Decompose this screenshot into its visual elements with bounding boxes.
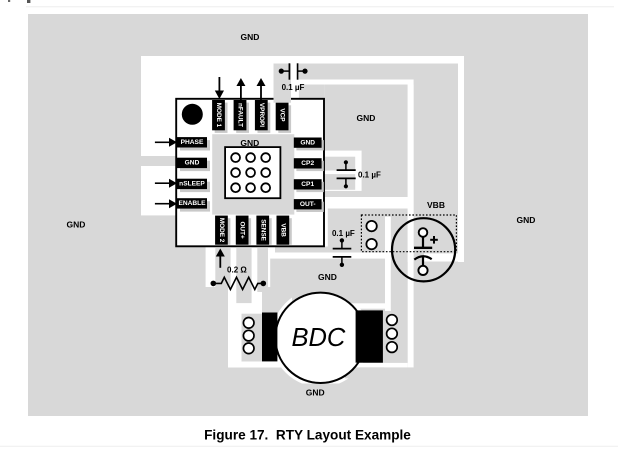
svg-text:PHASE: PHASE [181,139,204,146]
svg-text:GND: GND [300,140,315,147]
svg-text:0.1 µF: 0.1 µF [358,171,381,180]
svg-text:VBB: VBB [279,223,286,237]
svg-text:GND: GND [517,215,536,225]
svg-text:CP1: CP1 [301,181,314,188]
svg-text:GND: GND [241,32,260,42]
svg-text:GND: GND [306,387,325,397]
svg-text:MODE 1: MODE 1 [215,103,222,128]
svg-text:0.2 Ω: 0.2 Ω [227,265,247,274]
svg-text:GND: GND [67,220,86,230]
svg-text:BDC: BDC [291,324,345,352]
svg-text:0.1 µF: 0.1 µF [282,83,305,92]
svg-text:OUT+: OUT+ [239,221,246,238]
svg-text:VBB: VBB [427,200,445,210]
svg-text:VCP: VCP [279,108,286,122]
svg-text:OUT-: OUT- [300,201,316,208]
svg-text:GND: GND [357,113,376,123]
svg-text:Figure 17. RTY Layout Example: Figure 17. RTY Layout Example [204,428,411,443]
svg-text:nFAULT: nFAULT [237,103,244,127]
svg-text:CP2: CP2 [301,160,314,167]
svg-text:VPROPI: VPROPI [258,103,265,127]
svg-text:nSLEEP: nSLEEP [179,181,205,188]
svg-text:ENABLE: ENABLE [178,200,206,207]
svg-text:MODE 2: MODE 2 [218,218,225,243]
svg-text:GND: GND [318,272,337,282]
svg-text:GND: GND [185,160,200,167]
svg-text:0.1 µF: 0.1 µF [332,229,355,238]
svg-text:SENSE: SENSE [259,219,266,241]
